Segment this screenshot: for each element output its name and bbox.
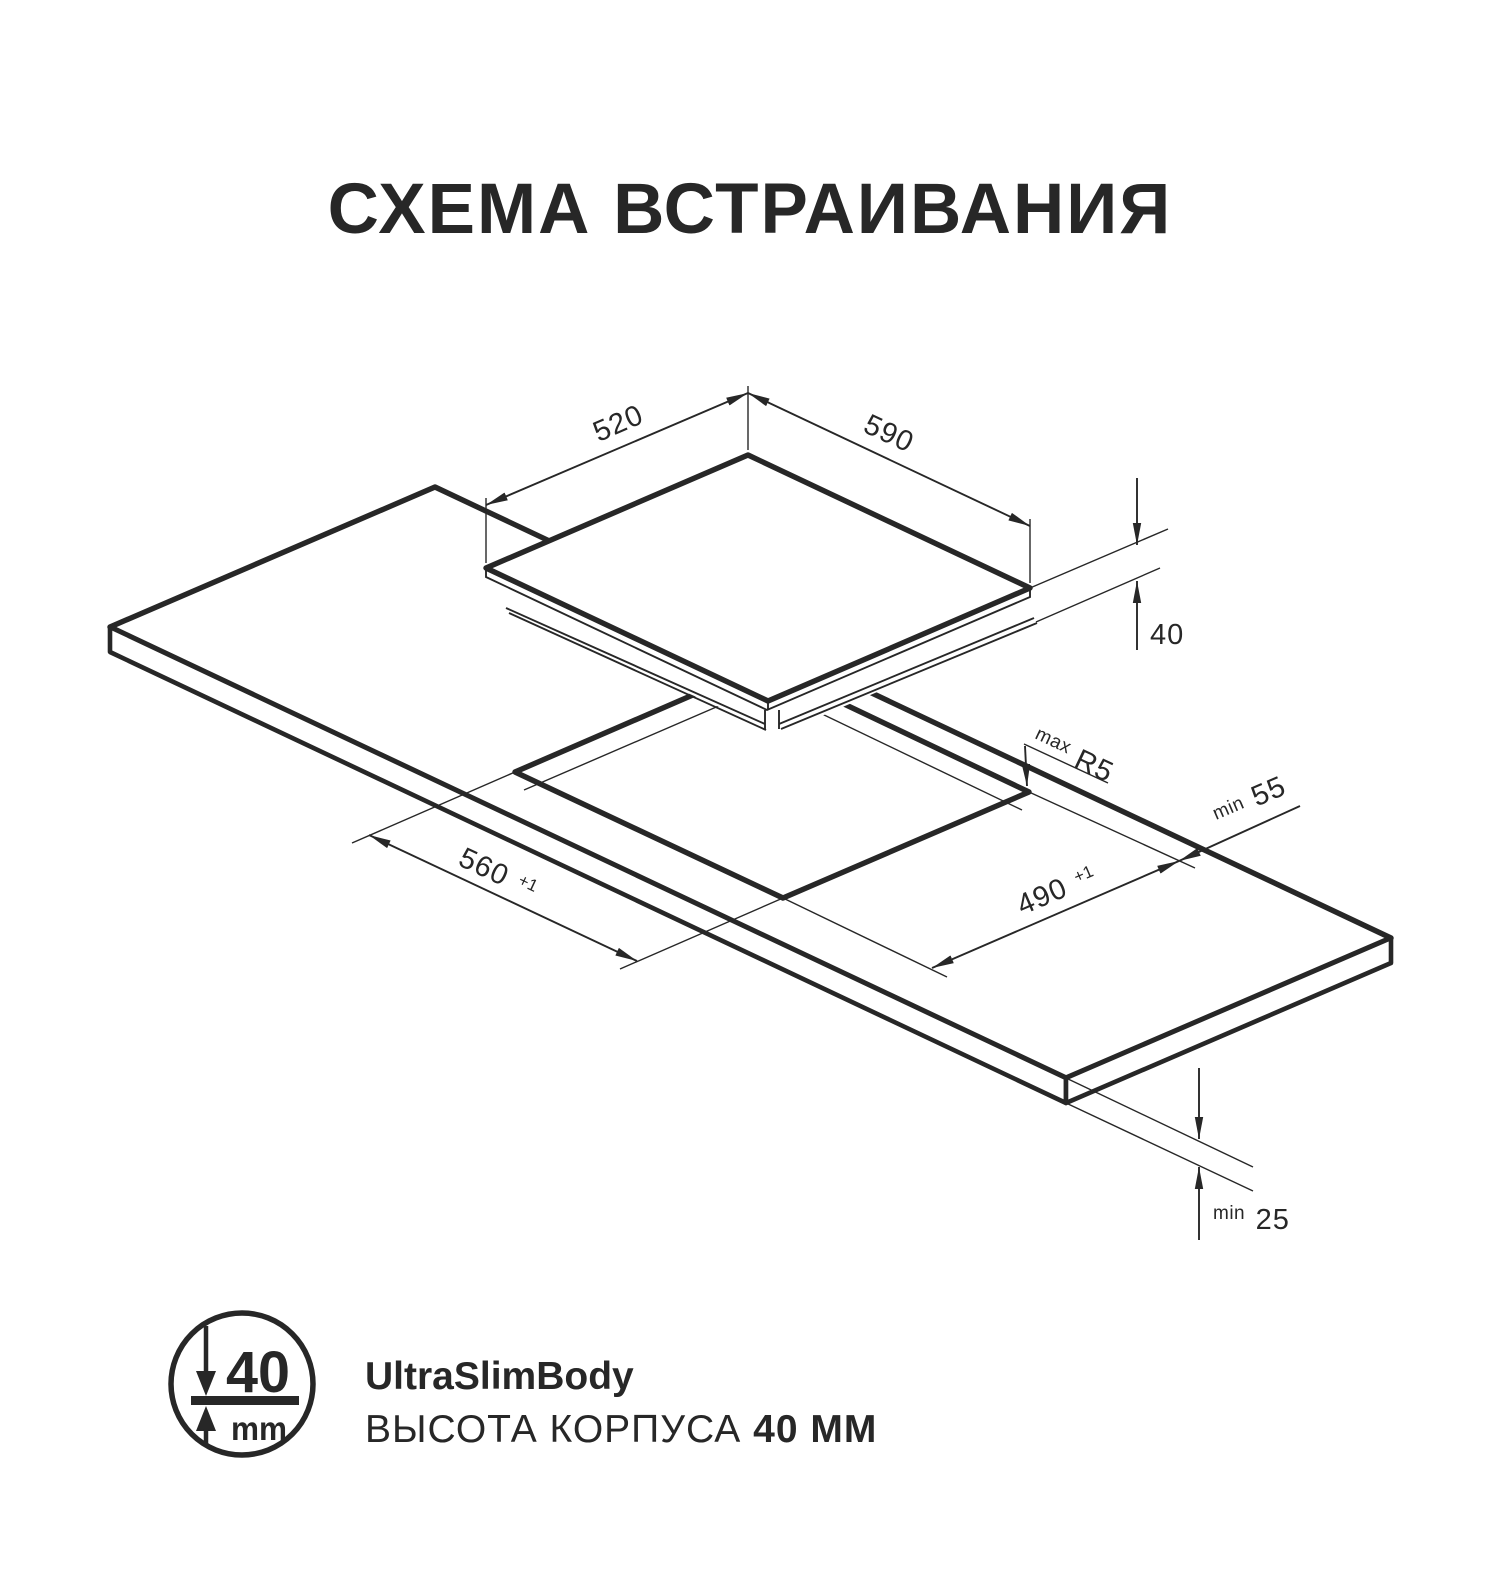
installation-diagram: 520 590 40 max R5 min 55 (110, 386, 1391, 1240)
dimension-worktop-thickness: min 25 (1199, 1068, 1290, 1240)
feature-description: ВЫСОТА КОРПУСА 40 ММ (365, 1408, 877, 1451)
dim-520-label: 520 (588, 399, 648, 449)
badge-height-unit: mm (231, 1410, 287, 1447)
slim-body-badge-icon: 40 mm (171, 1313, 313, 1455)
dim-40-label: 40 (1150, 619, 1184, 651)
installation-scheme-page: СХЕМА ВСТРАИВАНИЯ (0, 0, 1500, 1586)
feature-name: UltraSlimBody (365, 1355, 634, 1398)
dim-25-label: min 25 (1213, 1203, 1290, 1236)
page-title: СХЕМА ВСТРАИВАНИЯ (328, 170, 1173, 249)
arrow-down-icon (196, 1326, 216, 1396)
dim-55-label: min 55 (1208, 770, 1291, 830)
feature-block: 40 mm UltraSlimBody ВЫСОТА КОРПУСА 40 ММ (171, 1313, 877, 1455)
dimension-hob-height: 40 (1137, 478, 1184, 651)
badge-height-value: 40 (226, 1340, 290, 1405)
dim-590-label: 590 (859, 408, 919, 459)
